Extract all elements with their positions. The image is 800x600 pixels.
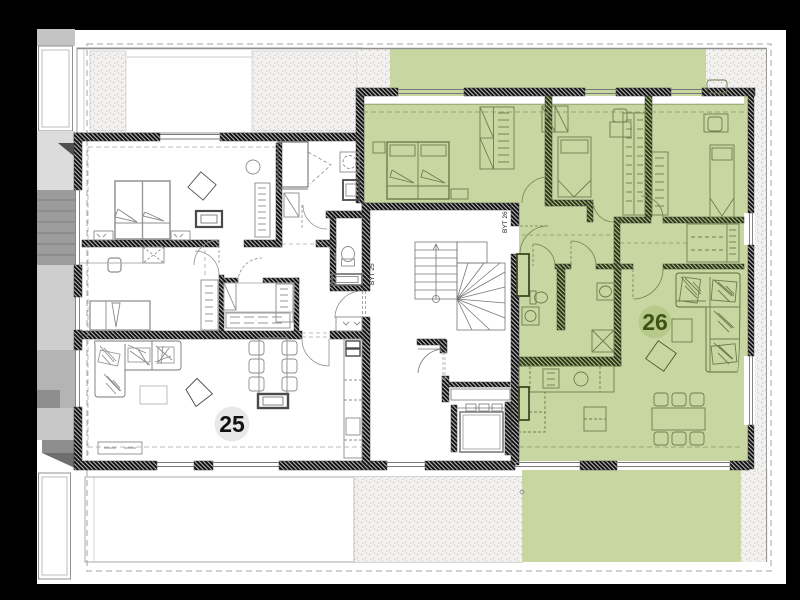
svg-text:25: 25 — [219, 411, 245, 437]
svg-text:BYT 26: BYT 26 — [502, 211, 509, 233]
svg-text:BYT 25: BYT 25 — [369, 263, 376, 285]
svg-text:26: 26 — [642, 309, 668, 335]
